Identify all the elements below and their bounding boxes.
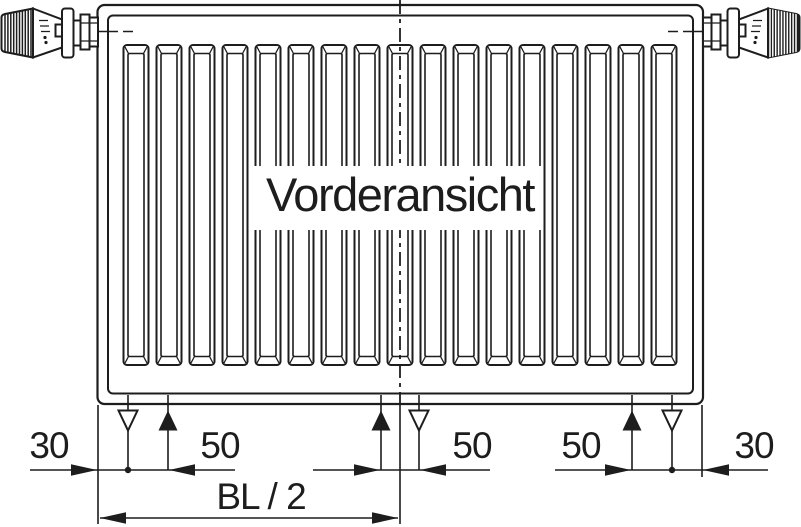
valve-nut xyxy=(703,18,712,47)
dimension-dot xyxy=(669,467,675,473)
dimension-annotations: 30 50 50 50 30 BL / 2 xyxy=(29,395,774,524)
valve-scale-dot xyxy=(44,41,47,44)
marker-open-triangle xyxy=(410,411,429,431)
marker-filled-triangle xyxy=(159,411,178,431)
dimension-arrow xyxy=(420,464,446,476)
dimension-arrow xyxy=(71,464,97,476)
valve-scale-dot xyxy=(753,41,756,44)
valve-nut xyxy=(90,18,99,47)
radiator-rib xyxy=(124,45,149,365)
valve-flange xyxy=(728,9,740,58)
radiator-rib xyxy=(619,45,644,365)
radiator-rib xyxy=(223,45,248,365)
radiator-rib xyxy=(652,45,677,365)
radiator-rib xyxy=(157,45,182,365)
dimension-arrow xyxy=(100,512,126,524)
radiator-front-view-diagram: Vorderansicht xyxy=(0,0,801,527)
valve-scale-dot xyxy=(43,36,46,39)
valve-nut xyxy=(712,15,721,50)
dim-label-30-left: 30 xyxy=(29,425,69,466)
dim-label-50-left: 50 xyxy=(200,425,240,466)
dimension-arrow xyxy=(169,464,195,476)
dim-label-30-right: 30 xyxy=(734,425,774,466)
valve-scale-dot xyxy=(754,36,757,39)
radiator-rib xyxy=(553,45,578,365)
dim-label-bl2: BL / 2 xyxy=(216,476,305,517)
valve-nut xyxy=(81,15,90,50)
valve-flange xyxy=(62,9,74,58)
radiator-rib xyxy=(190,45,215,365)
marker-open-triangle xyxy=(663,411,682,431)
view-label: Vorderansicht xyxy=(266,168,535,221)
dimension-dot xyxy=(125,467,131,473)
dimension-arrow xyxy=(372,512,398,524)
dimension-arrow xyxy=(703,464,729,476)
marker-filled-triangle xyxy=(623,411,642,431)
marker-filled-triangle xyxy=(372,411,391,431)
dim-label-50-right: 50 xyxy=(561,425,601,466)
diagram-canvas: Vorderansicht xyxy=(0,0,801,527)
valve-collar xyxy=(721,21,728,46)
radiator-rib xyxy=(586,45,611,365)
dimension-arrow xyxy=(354,464,380,476)
dimension-arrow xyxy=(605,464,631,476)
dim-label-50-center: 50 xyxy=(452,425,492,466)
valve-collar xyxy=(74,21,81,46)
marker-open-triangle xyxy=(119,411,138,431)
